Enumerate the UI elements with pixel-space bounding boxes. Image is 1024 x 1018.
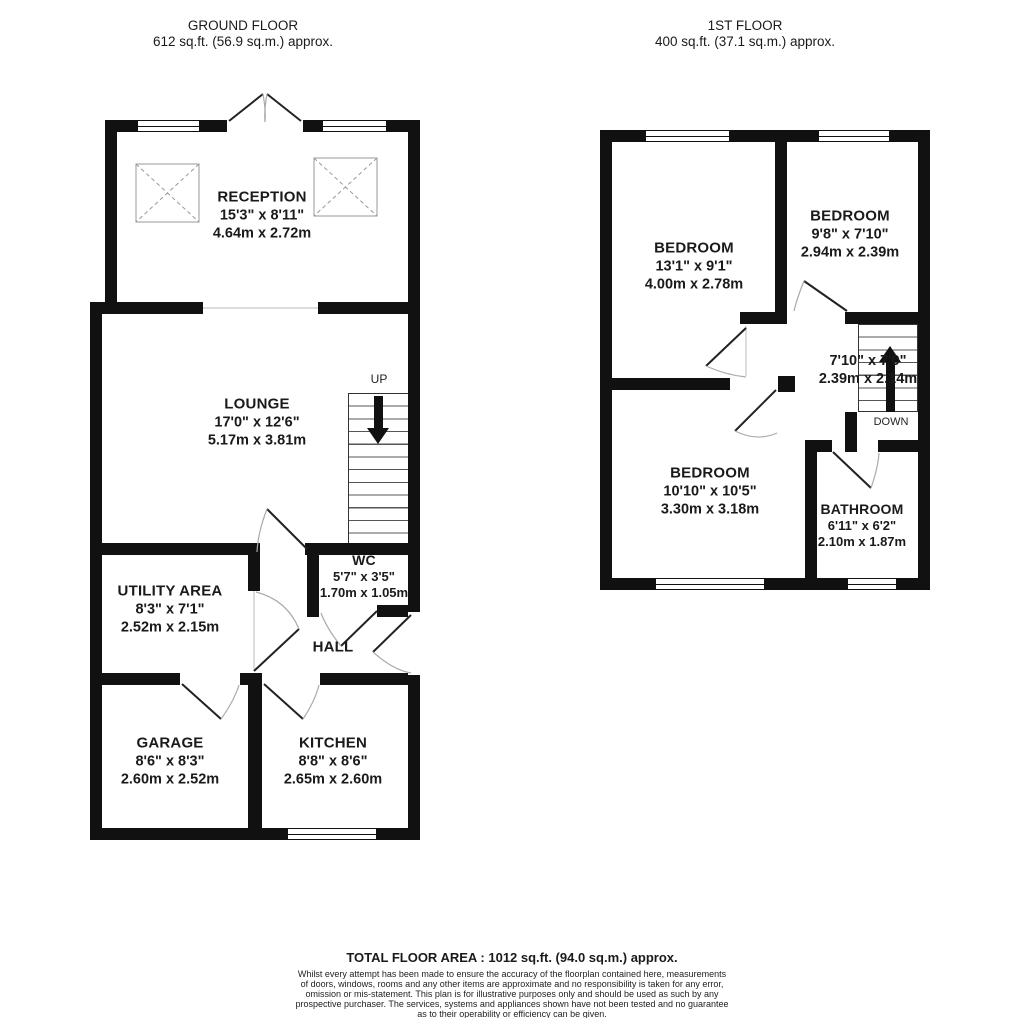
room-label-bedroom1: BEDROOM 13'1" x 9'1" 4.00m x 2.78m <box>645 240 743 295</box>
wall-segment <box>90 543 257 555</box>
total-floor-area: TOTAL FLOOR AREA : 1012 sq.ft. (94.0 sq.… <box>0 950 1024 965</box>
disclaimer-text: Whilst every attempt has been made to en… <box>0 969 1024 1018</box>
window <box>322 120 387 132</box>
room-name: RECEPTION <box>213 189 311 208</box>
ground-floor-area: 612 sq.ft. (56.9 sq.m.) approx. <box>153 34 333 50</box>
room-dim-metric: 5.17m x 3.81m <box>208 432 306 450</box>
room-dim-metric: 2.52m x 2.15m <box>118 619 223 637</box>
wall-segment <box>878 440 930 452</box>
room-dim-metric: 2.94m x 2.39m <box>801 244 899 262</box>
room-dim-metric: 2.60m x 2.52m <box>121 771 219 789</box>
window <box>655 578 765 590</box>
wall-segment <box>248 673 262 840</box>
room-dim-imperial: 8'3" x 7'1" <box>118 601 223 619</box>
wall-segment <box>600 378 730 390</box>
wall-segment <box>90 302 102 840</box>
first-floor-area: 400 sq.ft. (37.1 sq.m.) approx. <box>655 34 835 50</box>
room-dim-metric: 2.39m x 2.14m <box>819 371 917 389</box>
room-dim-metric: 3.30m x 3.18m <box>661 501 759 519</box>
room-label-hall: HALL <box>313 639 354 658</box>
room-dim-metric: 2.10m x 1.87m <box>818 535 906 551</box>
room-name: GARAGE <box>121 735 219 754</box>
room-name: BEDROOM <box>801 208 899 227</box>
room-dim-metric: 2.65m x 2.60m <box>284 771 382 789</box>
room-dim-imperial: 15'3" x 8'11" <box>213 207 311 225</box>
first-floor-header: 1ST FLOOR 400 sq.ft. (37.1 sq.m.) approx… <box>655 18 835 50</box>
stairs-direction-arrow <box>374 396 383 429</box>
room-name: BEDROOM <box>661 465 759 484</box>
room-label-bathroom: BATHROOM 6'11" x 6'2" 2.10m x 1.87m <box>818 501 906 551</box>
room-name: UTILITY AREA <box>118 583 223 602</box>
wall-segment <box>845 412 857 452</box>
stairs-down-label: DOWN <box>874 416 909 428</box>
wall-segment <box>740 312 787 324</box>
room-dim-metric: 4.00m x 2.78m <box>645 276 743 294</box>
room-dim-imperial: 10'10" x 10'5" <box>661 483 759 501</box>
room-name: BATHROOM <box>818 501 906 518</box>
stairs-up-label: UP <box>371 372 388 386</box>
wall-segment <box>90 673 180 685</box>
room-label-landing: 7'10" x 7'0" 2.39m x 2.14m <box>819 353 917 389</box>
room-dim-imperial: 7'10" x 7'0" <box>819 353 917 371</box>
room-dim-metric: 1.70m x 1.05m <box>320 586 408 602</box>
room-dim-imperial: 9'8" x 7'10" <box>801 226 899 244</box>
wall-segment <box>320 673 420 685</box>
french-door-opening <box>227 120 303 132</box>
wall-segment <box>307 543 319 617</box>
wall-segment <box>408 302 420 840</box>
wall-segment <box>105 120 117 314</box>
front-door-opening <box>408 612 420 675</box>
room-name: KITCHEN <box>284 735 382 754</box>
room-dim-imperial: 17'0" x 12'6" <box>208 414 306 432</box>
room-name: HALL <box>313 639 354 658</box>
room-dim-imperial: 8'6" x 8'3" <box>121 753 219 771</box>
ground-floor-header: GROUND FLOOR 612 sq.ft. (56.9 sq.m.) app… <box>153 18 333 50</box>
floorplan-page: GROUND FLOOR 612 sq.ft. (56.9 sq.m.) app… <box>0 0 1024 1018</box>
room-dim-imperial: 13'1" x 9'1" <box>645 258 743 276</box>
room-dim-metric: 4.64m x 2.72m <box>213 225 311 243</box>
room-label-utility: UTILITY AREA 8'3" x 7'1" 2.52m x 2.15m <box>118 583 223 638</box>
room-name: LOUNGE <box>208 396 306 415</box>
wall-segment <box>90 302 203 314</box>
wall-segment <box>778 376 795 392</box>
room-dim-imperial: 8'8" x 8'6" <box>284 753 382 771</box>
room-label-lounge: LOUNGE 17'0" x 12'6" 5.17m x 3.81m <box>208 396 306 451</box>
window <box>645 130 730 142</box>
room-label-bedroom2: BEDROOM 9'8" x 7'10" 2.94m x 2.39m <box>801 208 899 263</box>
room-label-wc: WC 5'7" x 3'5" 1.70m x 1.05m <box>320 552 408 602</box>
room-label-bedroom3: BEDROOM 10'10" x 10'5" 3.30m x 3.18m <box>661 465 759 520</box>
window <box>287 828 377 840</box>
ground-floor-title: GROUND FLOOR <box>153 18 333 34</box>
window <box>137 120 200 132</box>
wall-segment <box>318 302 420 314</box>
room-name: WC <box>320 552 408 569</box>
wall-segment <box>805 440 817 590</box>
wall-segment <box>600 130 612 590</box>
stairs-arrow-head-icon <box>367 428 389 444</box>
room-label-reception: RECEPTION 15'3" x 8'11" 4.64m x 2.72m <box>213 189 311 244</box>
wall-segment <box>248 543 260 591</box>
wall-segment <box>918 130 930 590</box>
first-floor-title: 1ST FLOOR <box>655 18 835 34</box>
room-dim-imperial: 6'11" x 6'2" <box>818 519 906 535</box>
window <box>818 130 890 142</box>
room-label-kitchen: KITCHEN 8'8" x 8'6" 2.65m x 2.60m <box>284 735 382 790</box>
wall-segment <box>775 142 787 324</box>
window <box>847 578 897 590</box>
room-label-garage: GARAGE 8'6" x 8'3" 2.60m x 2.52m <box>121 735 219 790</box>
room-name: BEDROOM <box>645 240 743 259</box>
footer: TOTAL FLOOR AREA : 1012 sq.ft. (94.0 sq.… <box>0 950 1024 1018</box>
wall-segment <box>845 312 930 324</box>
room-dim-imperial: 5'7" x 3'5" <box>320 570 408 586</box>
wall-segment <box>408 120 420 314</box>
